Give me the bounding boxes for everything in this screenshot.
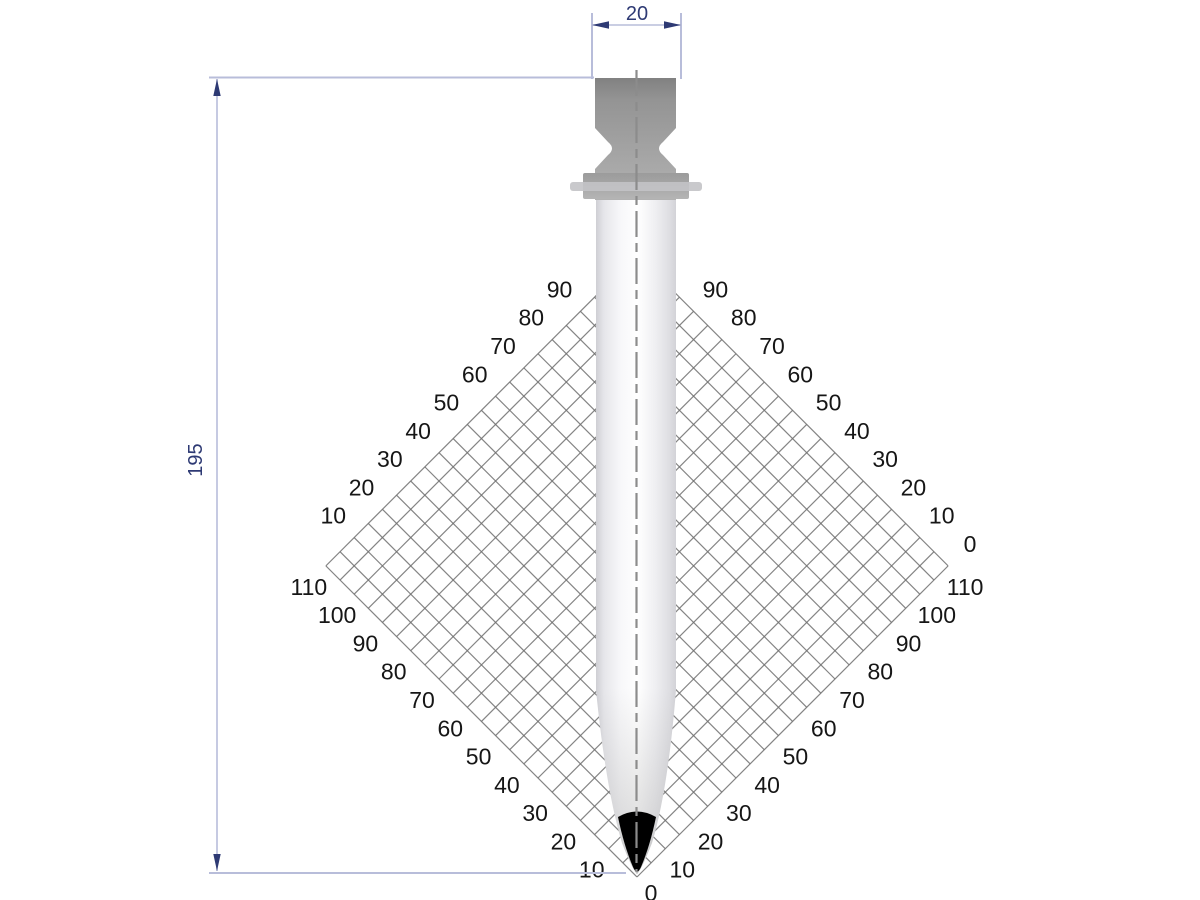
grid-scale-label: 50 xyxy=(783,744,809,770)
grid-scale-label: 20 xyxy=(349,474,375,500)
arrow-right-icon xyxy=(664,21,681,28)
grid-scale-label: 40 xyxy=(494,772,520,798)
grid-scale-label: 10 xyxy=(669,857,695,883)
grid-scale-label: 60 xyxy=(811,715,837,741)
arrow-down-icon xyxy=(213,854,220,871)
grid-scale-label: 60 xyxy=(787,361,813,387)
grid-scale-label: 40 xyxy=(754,772,780,798)
grid-scale-label: 20 xyxy=(901,474,927,500)
height-dimension: 195 xyxy=(185,78,626,874)
grid-scale-label: 30 xyxy=(377,446,403,472)
grid-scale-label: 70 xyxy=(490,333,516,359)
width-value: 20 xyxy=(626,3,648,25)
grid-scale-label: 0 xyxy=(645,880,658,900)
grid-scale-label: 70 xyxy=(839,687,865,713)
grid-scale-label: 10 xyxy=(579,857,605,883)
grid-scale-label: 20 xyxy=(698,828,724,854)
grid-scale-label: 50 xyxy=(816,390,842,416)
grid-scale-label: 0 xyxy=(964,531,977,557)
grid-scale-label: 30 xyxy=(522,800,548,826)
grid-scale-label: 60 xyxy=(437,715,463,741)
grid-scale-label: 80 xyxy=(381,659,407,685)
grid-scale-label: 100 xyxy=(318,602,356,628)
grid-scale-label: 30 xyxy=(726,800,752,826)
grid-scale-label: 100 xyxy=(918,602,956,628)
height-value: 195 xyxy=(185,443,207,476)
punch-technical-drawing: 1020304050607080900102030405060708090102… xyxy=(0,0,1200,900)
grid-scale-label: 70 xyxy=(409,687,435,713)
grid-scale-label: 50 xyxy=(434,390,460,416)
width-dimension: 20 xyxy=(592,3,681,79)
grid-scale-label: 10 xyxy=(320,503,346,529)
grid-scale-label: 60 xyxy=(462,361,488,387)
grid-scale-label: 70 xyxy=(759,333,785,359)
grid-scale-label: 90 xyxy=(353,630,379,656)
grid-scale-label: 80 xyxy=(867,659,893,685)
grid-scale-label: 40 xyxy=(405,418,431,444)
grid-scale-label: 80 xyxy=(518,305,544,331)
grid-scale-label: 110 xyxy=(947,574,984,600)
grid-scale-label: 40 xyxy=(844,418,870,444)
grid-scale-label: 80 xyxy=(731,305,757,331)
arrow-left-icon xyxy=(592,21,609,28)
grid-scale-label: 30 xyxy=(872,446,898,472)
grid-scale-label: 50 xyxy=(466,744,492,770)
grid-scale-label: 90 xyxy=(703,276,729,302)
arrow-up-icon xyxy=(213,79,220,96)
drawing-canvas: 1020304050607080900102030405060708090102… xyxy=(0,0,1200,900)
grid-scale-label: 110 xyxy=(291,574,328,600)
grid-scale-label: 10 xyxy=(929,503,955,529)
grid-scale-label: 90 xyxy=(547,276,573,302)
grid-scale-label: 20 xyxy=(551,828,577,854)
grid-scale-label: 90 xyxy=(896,630,922,656)
